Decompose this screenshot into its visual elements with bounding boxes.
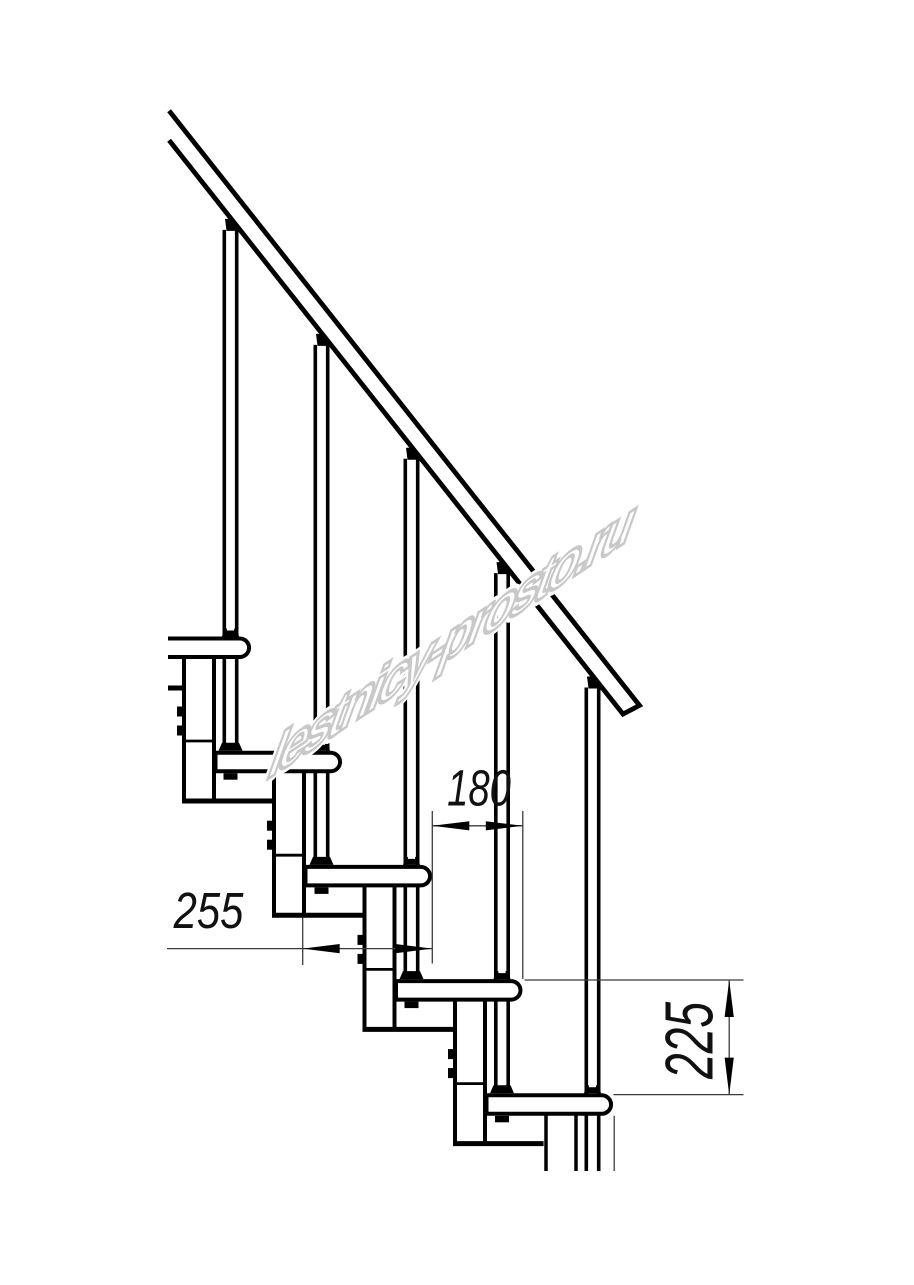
svg-text:225: 225 — [652, 1001, 728, 1079]
svg-text:255: 255 — [173, 882, 245, 939]
svg-text:180: 180 — [447, 759, 511, 817]
